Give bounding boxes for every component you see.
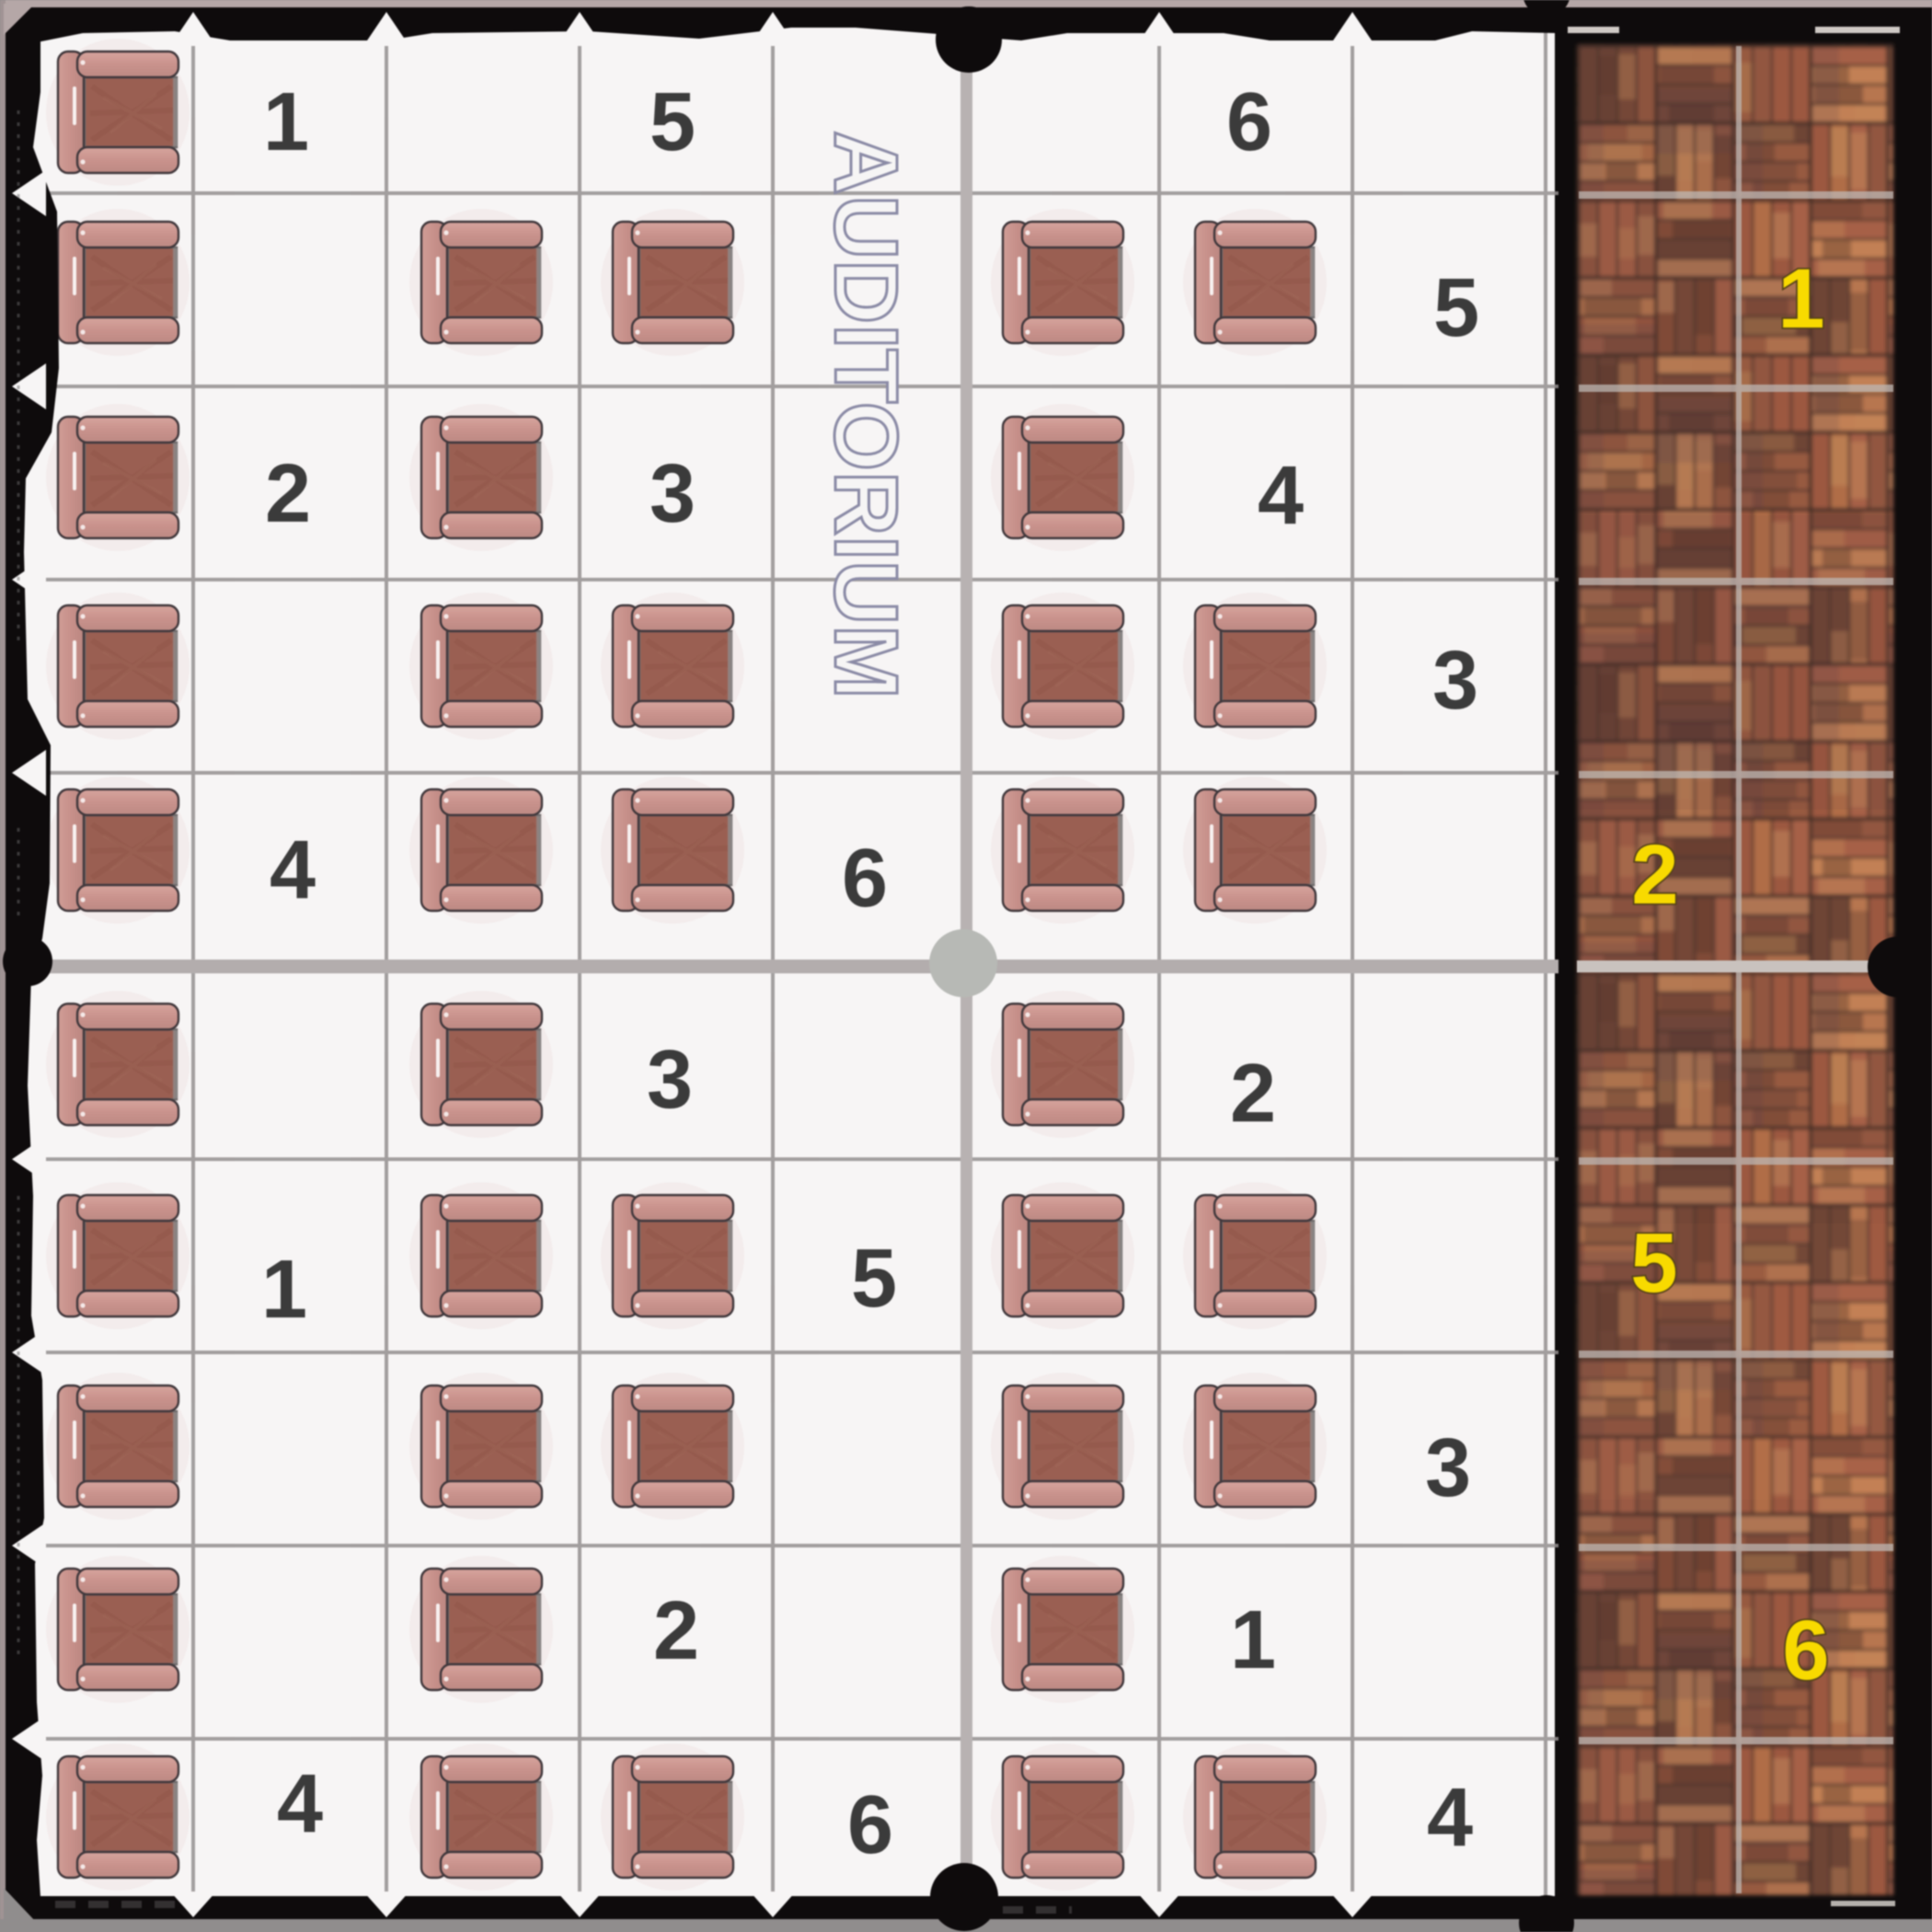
- svg-text:6: 6: [847, 1779, 893, 1871]
- svg-text:1: 1: [261, 1244, 307, 1336]
- svg-text:2: 2: [653, 1585, 699, 1677]
- svg-text:3: 3: [1425, 1422, 1471, 1514]
- svg-text:2: 2: [265, 448, 311, 540]
- svg-text:6: 6: [842, 833, 888, 925]
- svg-text:6: 6: [1226, 76, 1272, 168]
- svg-text:3: 3: [1432, 635, 1478, 727]
- svg-text:2: 2: [1230, 1048, 1276, 1140]
- svg-text:1: 1: [1230, 1594, 1276, 1686]
- svg-text:5: 5: [650, 76, 696, 168]
- svg-text:4: 4: [270, 824, 316, 916]
- svg-text:3: 3: [650, 448, 696, 540]
- svg-text:5: 5: [1433, 262, 1479, 354]
- svg-text:4: 4: [277, 1758, 323, 1850]
- svg-text:6: 6: [1782, 1604, 1829, 1697]
- svg-text:1: 1: [1777, 252, 1824, 346]
- svg-text:AUDITORIUM: AUDITORIUM: [816, 131, 916, 699]
- svg-text:5: 5: [1630, 1216, 1677, 1310]
- svg-text:4: 4: [1258, 450, 1304, 542]
- svg-text:5: 5: [851, 1233, 897, 1325]
- svg-text:4: 4: [1427, 1772, 1473, 1864]
- svg-text:2: 2: [1631, 828, 1678, 922]
- svg-text:3: 3: [647, 1034, 693, 1126]
- svg-text:1: 1: [263, 76, 309, 168]
